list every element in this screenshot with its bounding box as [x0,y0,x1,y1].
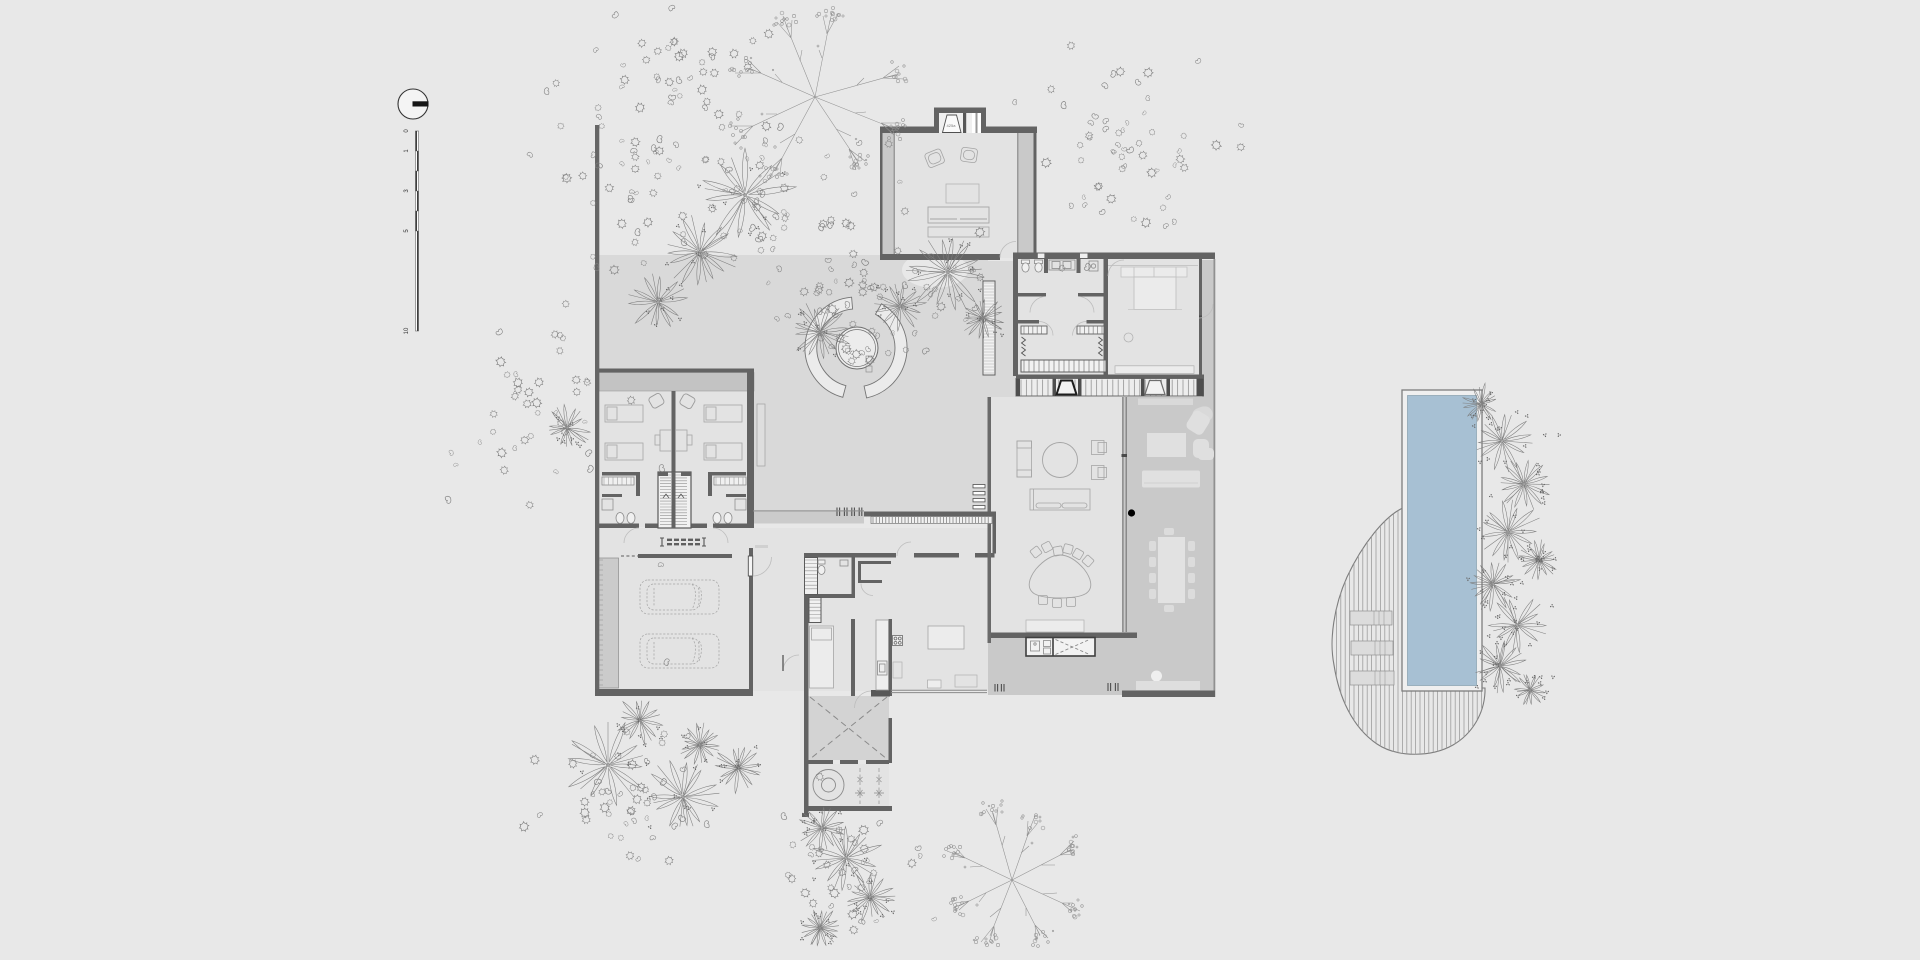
svg-text:10: 10 [404,327,410,334]
svg-text:425a: 425a [947,123,957,128]
